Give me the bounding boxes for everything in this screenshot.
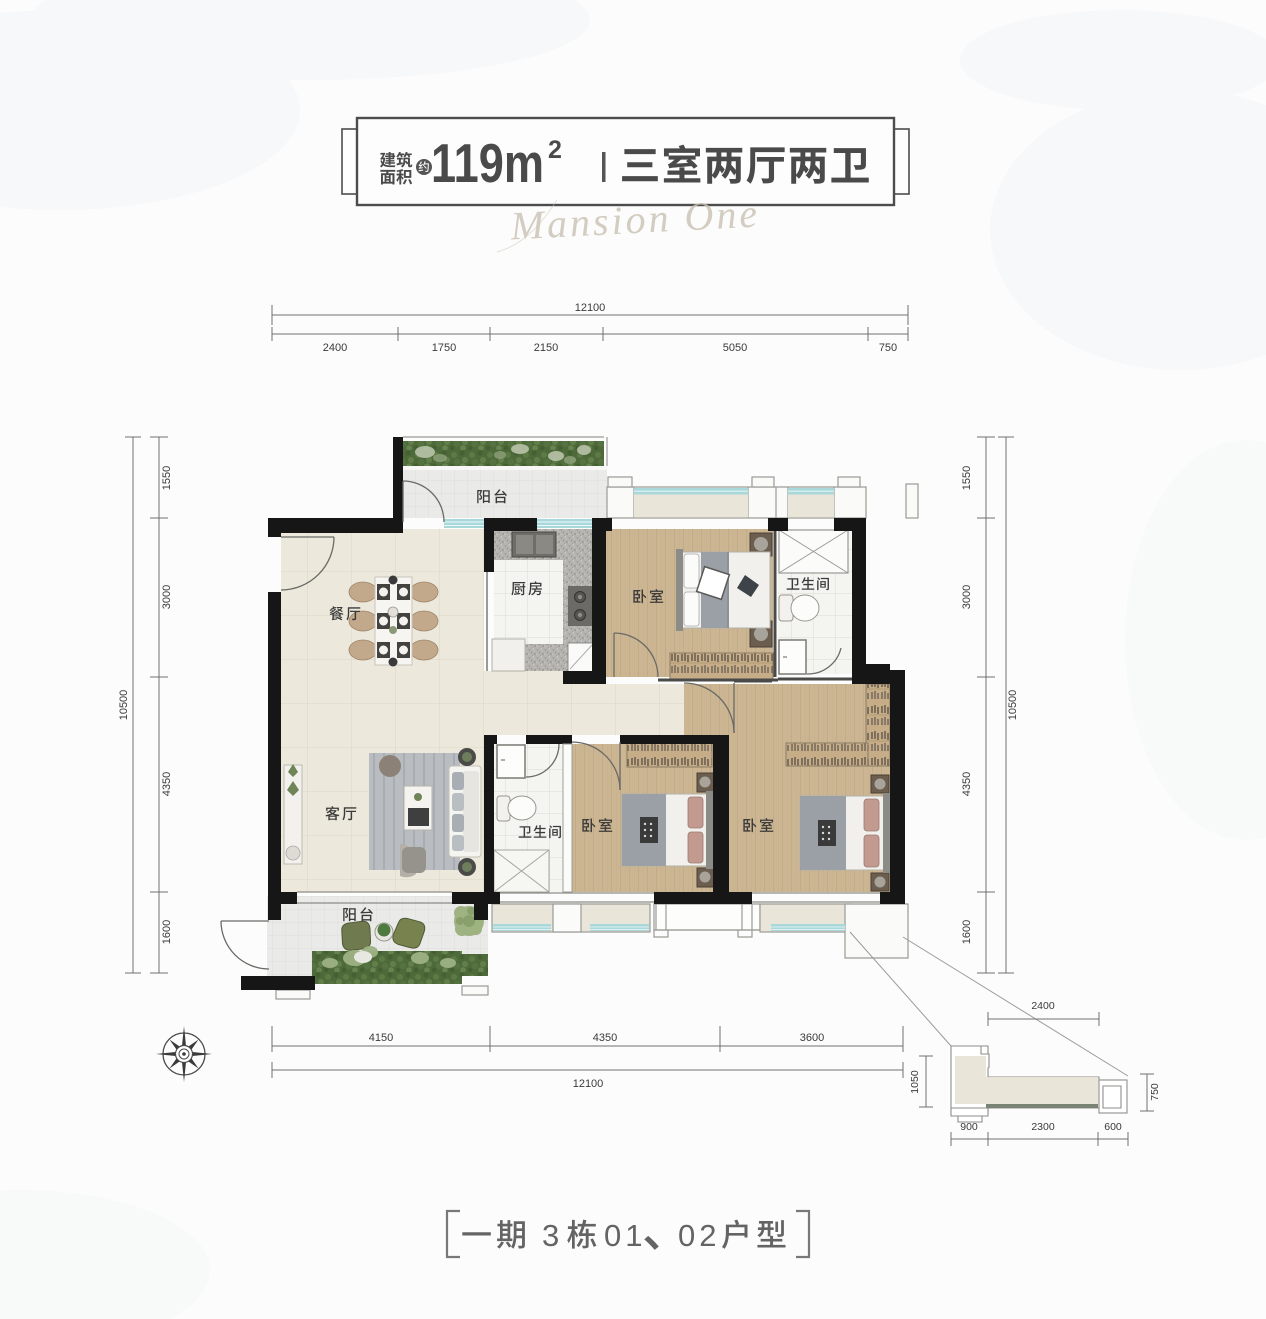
svg-text:600: 600	[1104, 1121, 1122, 1133]
svg-text:5050: 5050	[723, 342, 747, 354]
svg-text:2300: 2300	[1031, 1121, 1055, 1133]
svg-text:1750: 1750	[432, 342, 456, 354]
svg-text:4350: 4350	[593, 1032, 617, 1044]
svg-text:3600: 3600	[800, 1032, 824, 1044]
svg-text:1050: 1050	[909, 1070, 921, 1094]
svg-text:1600: 1600	[161, 920, 173, 944]
svg-text:3000: 3000	[161, 585, 173, 609]
svg-text:750: 750	[879, 342, 897, 354]
svg-text:1550: 1550	[161, 466, 173, 490]
svg-text:2400: 2400	[1031, 1000, 1055, 1012]
svg-text:10500: 10500	[118, 690, 130, 721]
svg-text:02: 02	[678, 1218, 720, 1253]
svg-text:2150: 2150	[534, 342, 558, 354]
svg-text:4350: 4350	[161, 772, 173, 796]
svg-text:4150: 4150	[369, 1032, 393, 1044]
svg-text:2: 2	[548, 136, 562, 164]
svg-text:10500: 10500	[1007, 690, 1019, 721]
svg-text:01: 01	[604, 1218, 646, 1253]
svg-text:2400: 2400	[323, 342, 347, 354]
svg-text:3000: 3000	[961, 585, 973, 609]
svg-text:3: 3	[542, 1218, 559, 1253]
svg-text:4350: 4350	[961, 772, 973, 796]
svg-text:1550: 1550	[961, 466, 973, 490]
svg-text:12100: 12100	[575, 302, 606, 314]
svg-text:119m: 119m	[431, 132, 544, 194]
svg-text:1600: 1600	[961, 920, 973, 944]
svg-text:12100: 12100	[573, 1078, 604, 1090]
svg-text:750: 750	[1149, 1083, 1161, 1101]
svg-text:900: 900	[960, 1121, 978, 1133]
